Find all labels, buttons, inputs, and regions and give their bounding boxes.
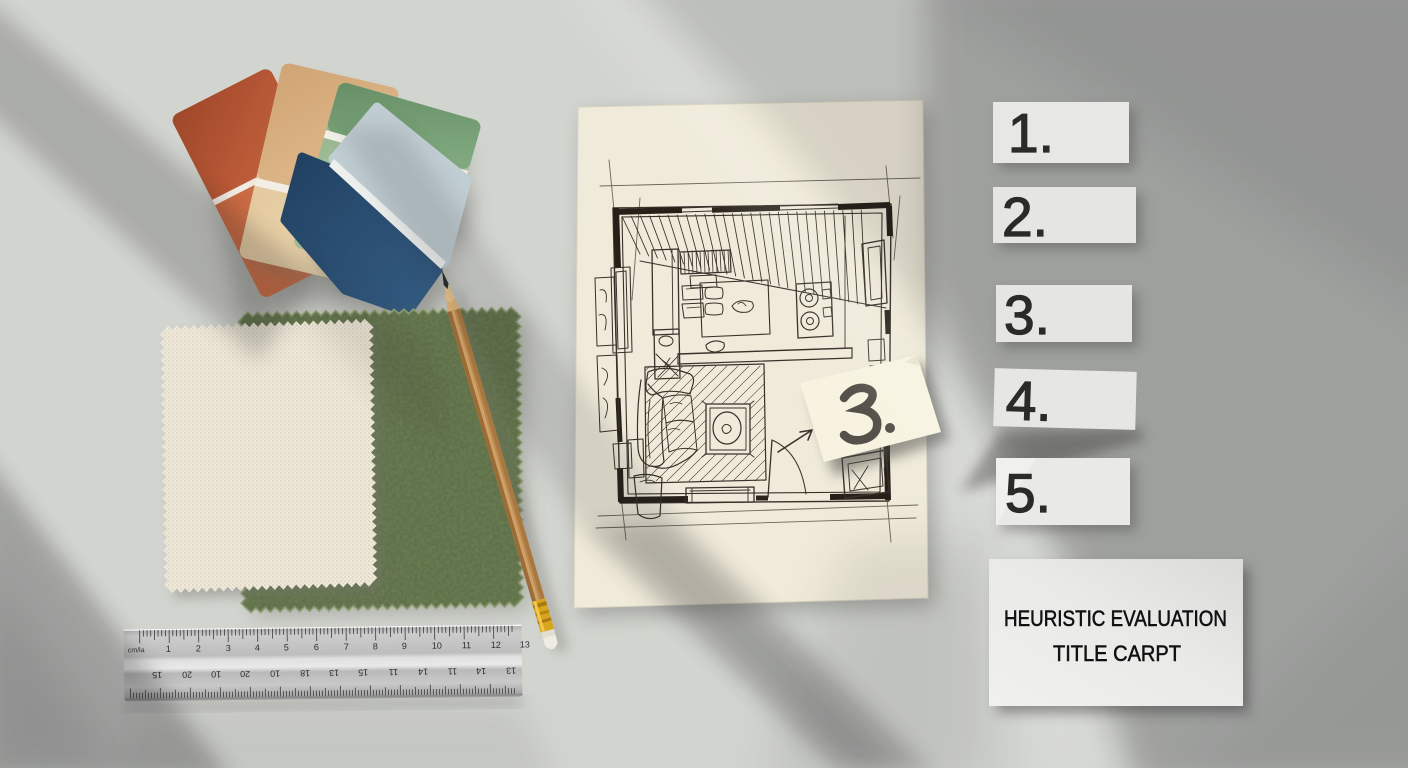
svg-text:5: 5 (284, 642, 289, 652)
svg-text:12: 12 (491, 640, 501, 650)
svg-text:11: 11 (462, 640, 471, 650)
svg-text:20: 20 (182, 670, 192, 680)
svg-text:15: 15 (358, 667, 368, 677)
svg-text:11: 11 (448, 666, 457, 676)
svg-text:18: 18 (300, 668, 310, 678)
svg-text:2.: 2. (1002, 186, 1048, 248)
svg-text:HEURISTIC EVALUATION: HEURISTIC EVALUATION (1004, 606, 1227, 631)
svg-text:10: 10 (211, 669, 221, 679)
svg-text:7: 7 (344, 642, 349, 652)
svg-text:8: 8 (373, 641, 378, 651)
svg-text:11: 11 (389, 667, 398, 677)
svg-text:10: 10 (270, 668, 280, 678)
svg-text:TITLE CARPT: TITLE CARPT (1053, 641, 1181, 666)
svg-text:4.: 4. (1005, 369, 1053, 433)
svg-text:3.: 3. (1004, 284, 1050, 346)
svg-text:9: 9 (402, 641, 407, 651)
svg-text:4: 4 (255, 643, 260, 653)
svg-text:1: 1 (166, 644, 171, 654)
svg-text:6: 6 (314, 642, 319, 652)
svg-text:10: 10 (432, 641, 442, 651)
svg-text:3: 3 (226, 643, 231, 653)
svg-text:13: 13 (520, 639, 530, 649)
svg-text:2: 2 (196, 643, 201, 653)
svg-text:14: 14 (418, 667, 428, 677)
svg-text:20: 20 (240, 669, 250, 679)
svg-text:1.: 1. (1008, 102, 1054, 164)
svg-text:13: 13 (329, 668, 339, 678)
svg-text:5.: 5. (1005, 462, 1051, 524)
svg-text:14: 14 (476, 666, 486, 676)
svg-text:13: 13 (506, 666, 516, 676)
